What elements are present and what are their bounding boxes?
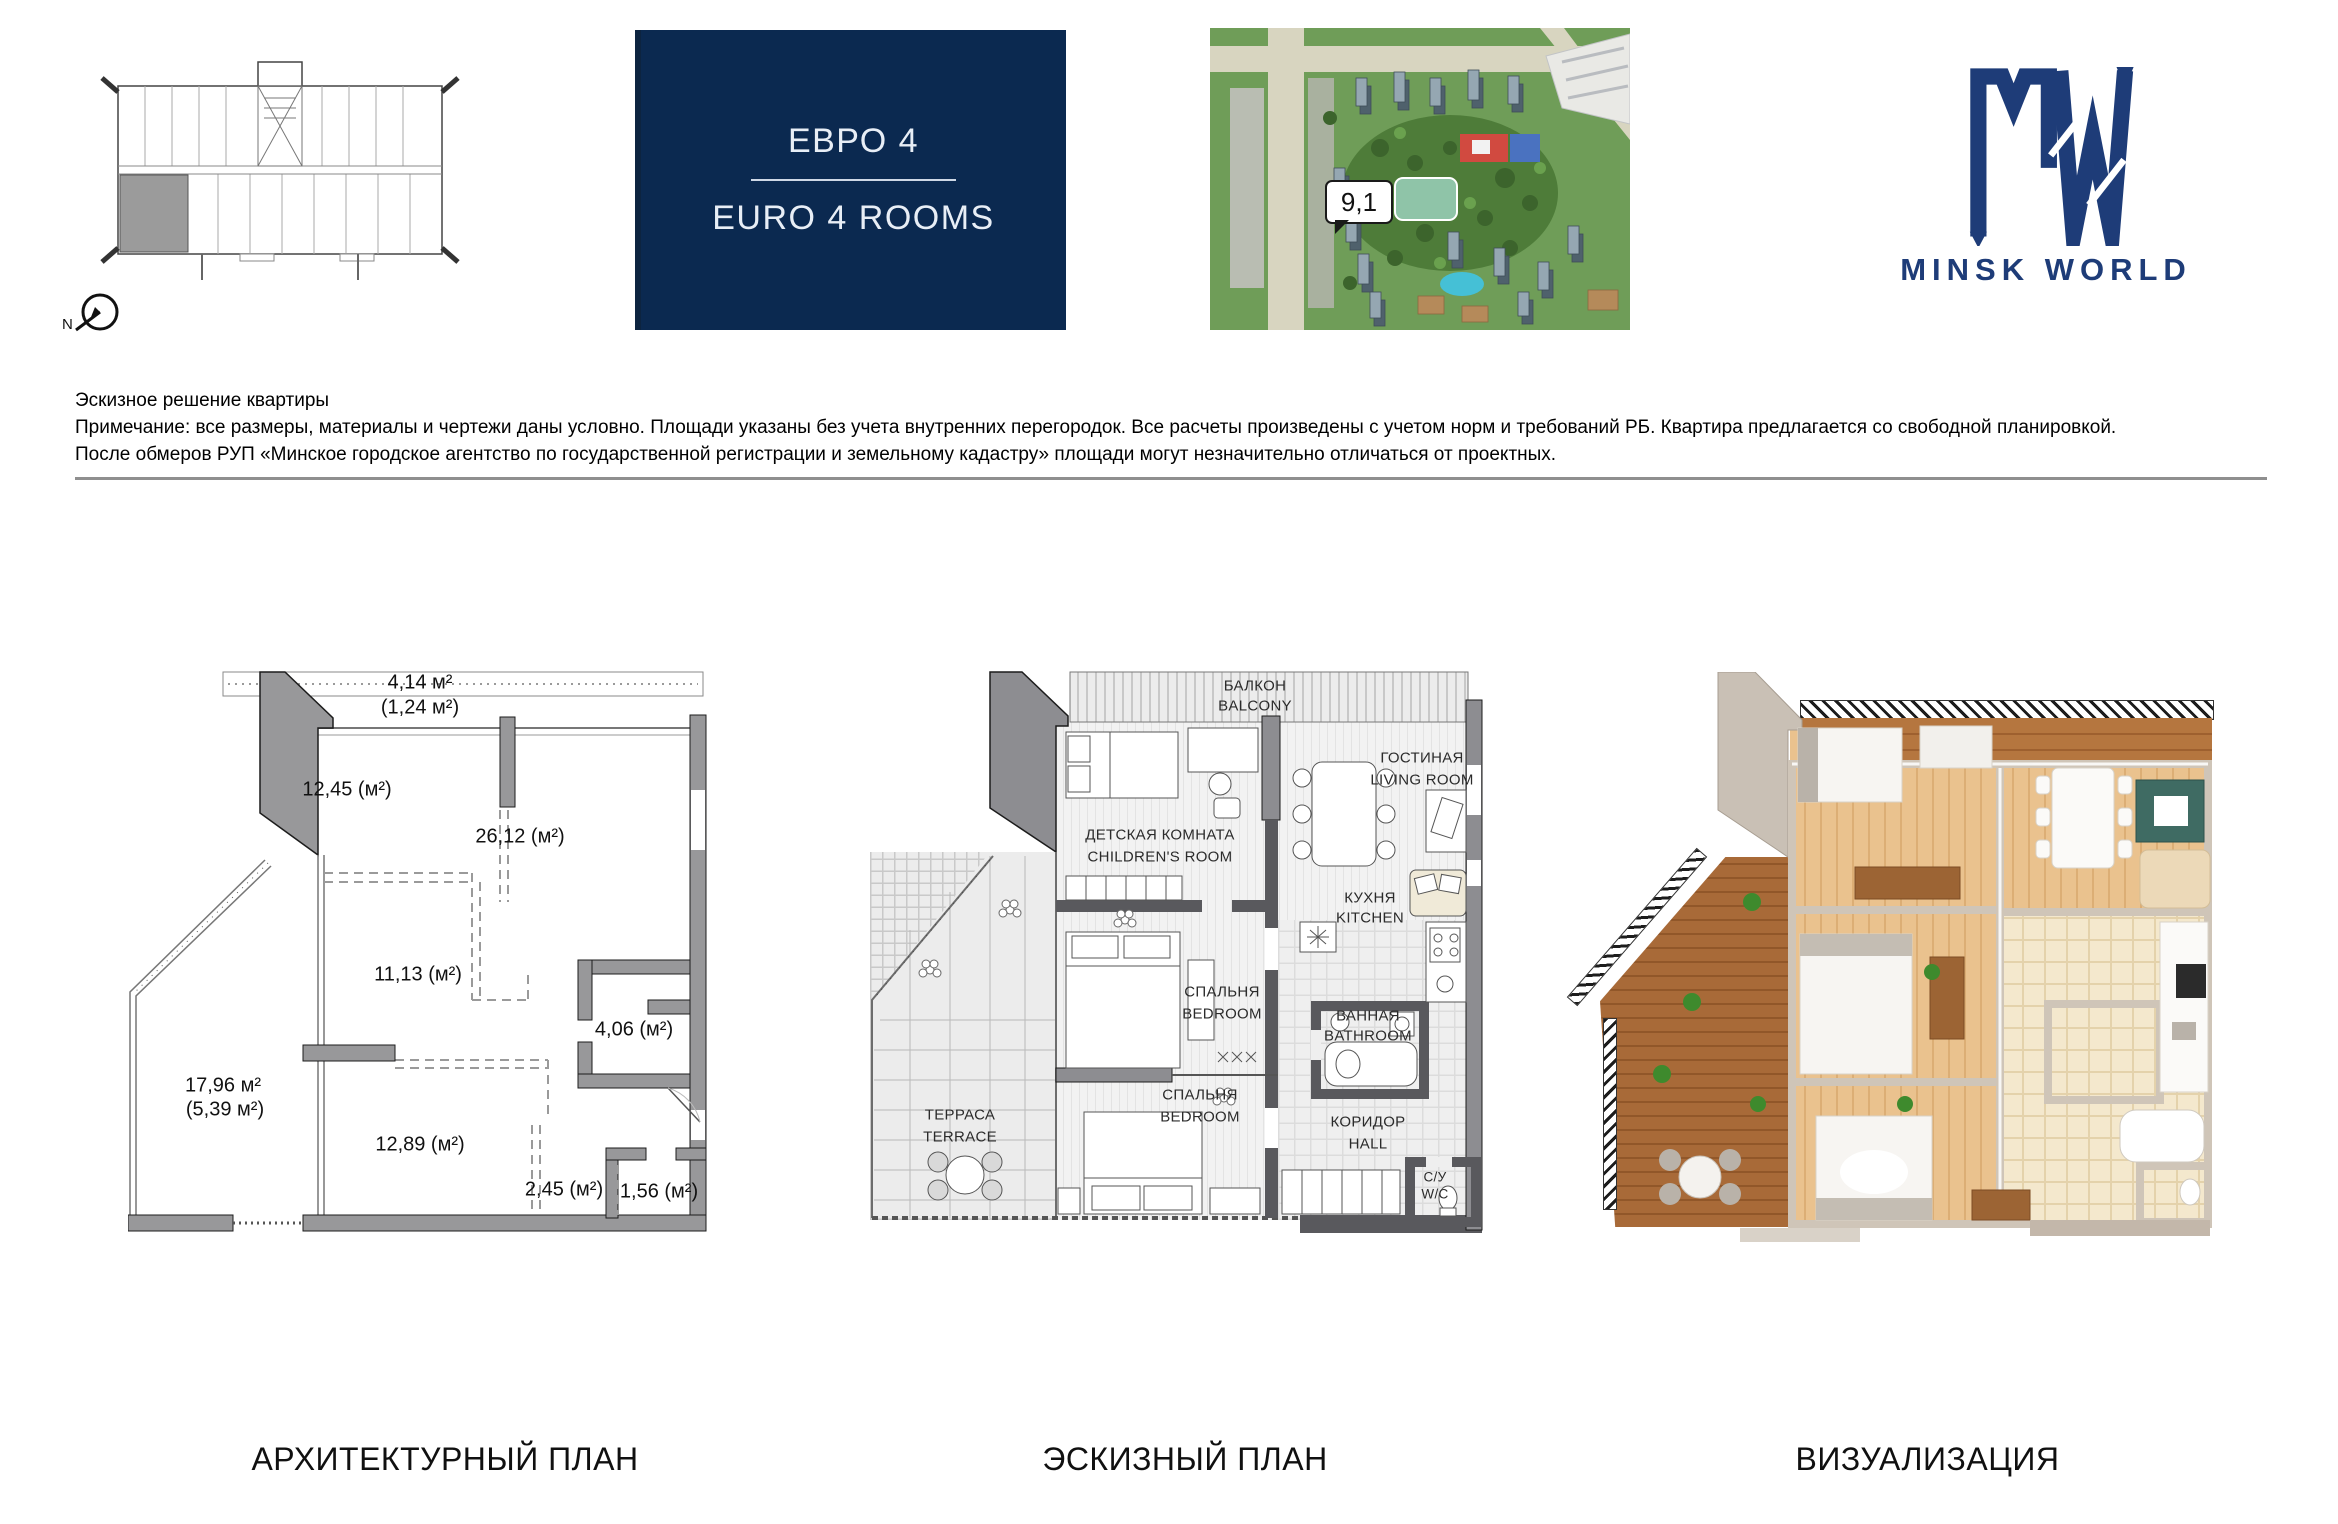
- bedroom1-bed-icon: [1066, 932, 1180, 1068]
- kitchen-counter-icon: [1426, 922, 1466, 1002]
- mw-monogram-icon: [1955, 46, 2137, 246]
- north-label: N: [62, 316, 73, 333]
- sofa-icon: [1410, 870, 1466, 916]
- room-label-kitchen-ru: КУХНЯ: [1344, 890, 1396, 907]
- room-label-children-ru: ДЕТСКАЯ КОМНАТА: [1085, 827, 1234, 844]
- viz-toilet: [2180, 1179, 2200, 1205]
- room-label-wc-en: W/C: [1421, 1187, 1448, 1202]
- viz-bed1: [1798, 728, 1902, 802]
- hall-wardrobe-icon: [1282, 1170, 1400, 1214]
- room-label-hall-en: HALL: [1349, 1136, 1388, 1153]
- room-label-bathroom-ru: ВАННАЯ: [1336, 1008, 1400, 1025]
- kitchen-sink-icon: [1300, 922, 1336, 952]
- viz-bathtub: [2120, 1110, 2204, 1162]
- viz-terrace-table: [1659, 1149, 1741, 1205]
- viz-dining-set: [2036, 768, 2132, 868]
- area-label-room-c: 11,13 (м²): [374, 964, 462, 987]
- highlighted-unit: [120, 175, 188, 252]
- aerial-map: [1210, 28, 1630, 330]
- area-label-room-b: 26,12 (м²): [475, 826, 564, 849]
- room-label-living-ru: ГОСТИНАЯ: [1380, 750, 1463, 767]
- brand-name: MINSK WORLD: [1878, 252, 2214, 288]
- room-label-bedroom1-en: BEDROOM: [1182, 1006, 1262, 1023]
- area-label-balcony-total: 4,14 м²: [388, 672, 453, 695]
- map-building-callout: 9,1: [1325, 180, 1393, 224]
- note-title: Эскизное решение квартиры: [75, 390, 329, 412]
- bathtub-icon: [1325, 1042, 1417, 1086]
- room-label-living-en: LIVING ROOM: [1370, 772, 1473, 789]
- area-label-room-a: 12,45 (м²): [302, 779, 391, 802]
- caption-sketch-plan: ЭСКИЗНЫЙ ПЛАН: [1030, 1441, 1340, 1478]
- area-label-terrace-counted: (5,39 м²): [186, 1099, 264, 1122]
- banner-divider: [751, 179, 956, 181]
- area-label-wc: 1,56 (м²): [620, 1181, 698, 1204]
- viz-kitchen-counter: [2160, 922, 2208, 1092]
- area-label-bathroom: 4,06 (м²): [595, 1019, 673, 1042]
- room-label-balcony-en: BALCONY: [1218, 698, 1292, 715]
- caption-visualization: ВИЗУАЛИЗАЦИЯ: [1775, 1441, 2080, 1478]
- room-label-terrace-ru: ТЕРРАСА: [925, 1107, 995, 1124]
- wardrobe-icon: [1066, 876, 1182, 900]
- unit-type-banner: ЕВРО 4 EURO 4 ROOMS: [635, 30, 1066, 330]
- room-label-bedroom2-en: BEDROOM: [1160, 1109, 1240, 1126]
- area-label-room-d: 12,89 (м²): [375, 1134, 464, 1157]
- sketch-plan-panel: БАЛКОН BALCONY ДЕТСКАЯ КОМНАТА CHILDREN'…: [870, 670, 1490, 1245]
- room-label-bedroom2-ru: СПАЛЬНЯ: [1162, 1087, 1237, 1104]
- hatch-marks: [1218, 1052, 1256, 1062]
- building-floor-thumbnail: [90, 48, 470, 293]
- visualization-drawing: [1600, 672, 2230, 1250]
- north-compass-icon: [64, 288, 126, 348]
- desk-icon: [1188, 728, 1258, 818]
- plan-sheet-page: { "top": { "floor_overview": { "north_la…: [0, 0, 2338, 1524]
- children-bed-icon: [1066, 732, 1178, 798]
- bedroom2-bed-icon: [1084, 1112, 1202, 1214]
- viz-stove: [2176, 964, 2206, 998]
- visualization-panel: [1600, 672, 2230, 1250]
- room-label-balcony-ru: БАЛКОН: [1224, 678, 1287, 695]
- architectural-plan-panel: 4,14 м² (1,24 м²) 12,45 (м²) 26,12 (м²) …: [128, 670, 710, 1245]
- viz-coffee-table: [2154, 796, 2188, 826]
- viz-bed2: [1800, 934, 1912, 1074]
- room-label-kitchen-en: KITCHEN: [1336, 910, 1404, 927]
- viz-bed3: [1816, 1116, 1932, 1220]
- note-line-1: Примечание: все размеры, материалы и чер…: [75, 417, 2116, 439]
- room-label-hall-ru: КОРИДОР: [1331, 1114, 1406, 1131]
- unit-type-en: EURO 4 ROOMS: [712, 199, 994, 238]
- area-label-hall: 2,45 (м²): [525, 1179, 603, 1202]
- room-label-bedroom1-ru: СПАЛЬНЯ: [1184, 984, 1259, 1001]
- architectural-plan-drawing: [128, 670, 710, 1245]
- room-label-children-en: CHILDREN'S ROOM: [1088, 849, 1233, 866]
- viz-sofa: [2140, 850, 2210, 908]
- room-label-wc-ru: С/У: [1424, 1170, 1447, 1185]
- tv-stand-icon: [1426, 790, 1466, 852]
- caption-architectural-plan: АРХИТЕКТУРНЫЙ ПЛАН: [245, 1441, 645, 1478]
- map-callout-text: 9,1: [1341, 187, 1377, 218]
- room-label-bathroom-en: BATHROOM: [1324, 1028, 1412, 1045]
- section-divider: [75, 477, 2267, 480]
- area-label-terrace-total: 17,96 м²: [185, 1075, 261, 1098]
- area-label-balcony-counted: (1,24 м²): [381, 697, 459, 720]
- unit-type-ru: ЕВРО 4: [788, 122, 919, 161]
- aerial-map-art: [1210, 28, 1630, 330]
- note-line-2: После обмеров РУП «Минское городское аге…: [75, 444, 1556, 466]
- room-label-terrace-en: TERRACE: [923, 1129, 997, 1146]
